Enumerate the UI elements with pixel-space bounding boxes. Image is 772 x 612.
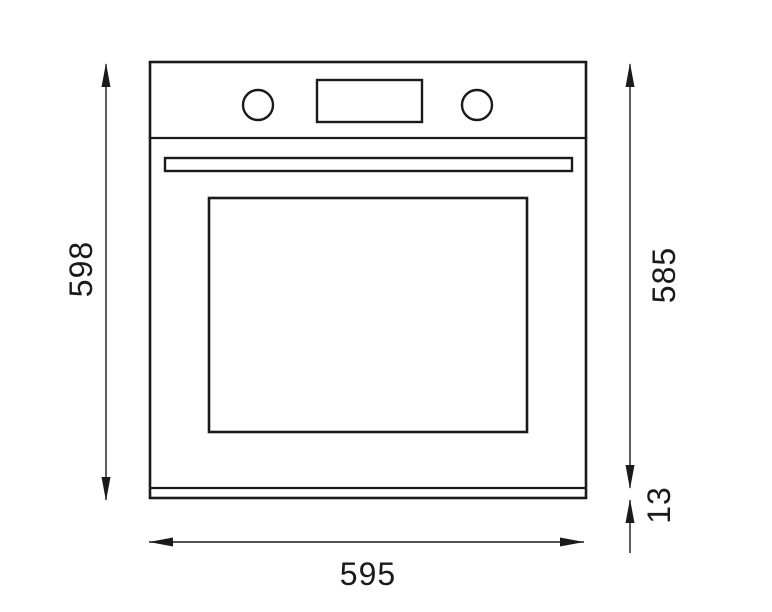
display-window (317, 80, 422, 122)
oven-dimension-diagram: 598 585 13 595 (0, 0, 772, 612)
arrow-up-icon (626, 63, 635, 87)
arrow-left-icon (149, 538, 173, 547)
left-control-knob (243, 90, 273, 120)
dimension-body-height: 585 (626, 63, 683, 489)
arrow-right-icon (560, 538, 584, 547)
technical-drawing-svg: 598 585 13 595 (0, 0, 772, 612)
door-handle (165, 158, 572, 171)
arrow-down-icon (626, 465, 635, 489)
dimension-overall-width: 595 (149, 538, 584, 593)
oven-front-view (150, 62, 586, 498)
dimension-overall-height: 598 (63, 63, 111, 501)
arrow-up-icon (102, 63, 111, 87)
right-control-knob (462, 90, 492, 120)
body-height-label: 585 (646, 247, 682, 303)
overall-height-label: 598 (63, 241, 99, 297)
overall-width-label: 595 (340, 556, 396, 592)
arrow-up-icon (626, 499, 635, 523)
strip-height-label: 13 (641, 486, 677, 524)
drawing-linework: 598 585 13 595 (63, 62, 682, 592)
dimension-strip-height: 13 (626, 486, 678, 553)
door-glass-window (209, 198, 527, 432)
arrow-down-icon (102, 477, 111, 501)
